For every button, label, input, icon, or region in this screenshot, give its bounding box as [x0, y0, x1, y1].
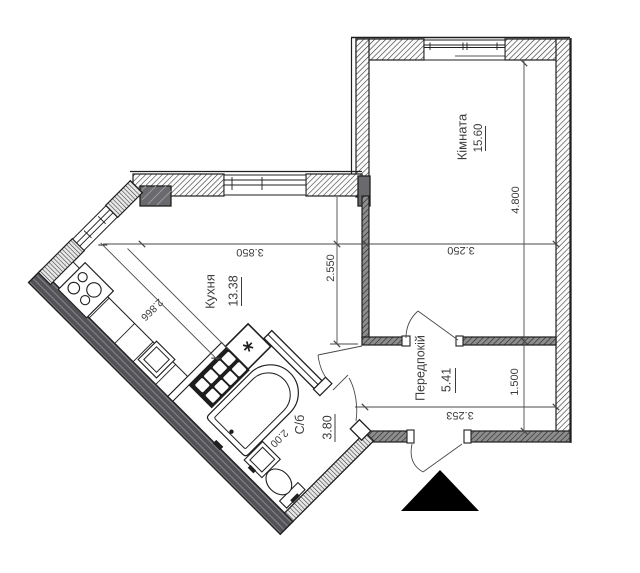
svg-text:3.80: 3.80 — [320, 415, 334, 439]
svg-text:5.41: 5.41 — [439, 368, 453, 392]
svg-text:15.60: 15.60 — [473, 124, 485, 153]
svg-text:13.38: 13.38 — [226, 275, 240, 306]
svg-text:1.500: 1.500 — [509, 368, 521, 396]
svg-text:С/б: С/б — [293, 415, 307, 435]
svg-text:3.850: 3.850 — [236, 246, 264, 258]
svg-text:Передпокій: Передпокій — [413, 335, 427, 401]
svg-text:3.250: 3.250 — [447, 244, 475, 256]
svg-text:3.253: 3.253 — [446, 409, 474, 421]
svg-text:4.800: 4.800 — [510, 186, 522, 214]
svg-text:Кімната: Кімната — [454, 113, 469, 160]
svg-text:Кухня: Кухня — [202, 274, 217, 309]
svg-text:2.550: 2.550 — [325, 254, 337, 282]
